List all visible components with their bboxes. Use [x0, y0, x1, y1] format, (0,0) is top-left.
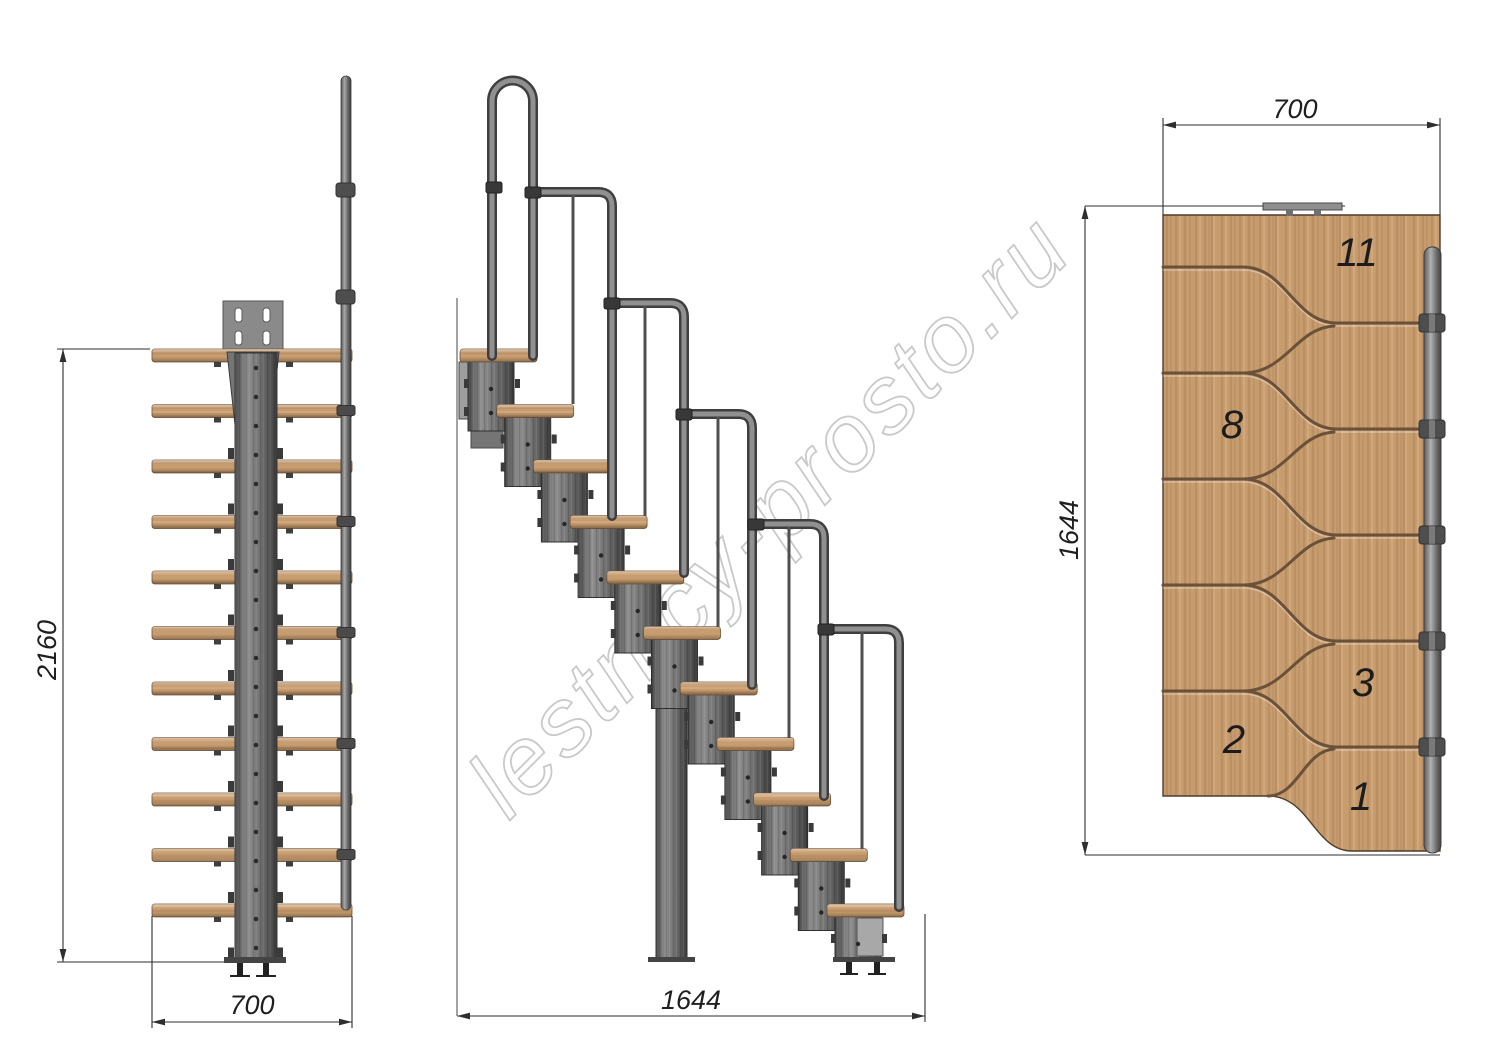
- tread-number-8: 8: [1221, 403, 1244, 447]
- support-base-plate: [648, 957, 695, 962]
- side-view: [457, 81, 904, 1016]
- top-mounting-plate: [1263, 203, 1342, 216]
- tread-number-11: 11: [1336, 231, 1378, 275]
- plan-width-dimension-lines: [1163, 118, 1440, 215]
- dimension-arrow: [1163, 122, 1176, 129]
- column-bolt-holes: [254, 366, 259, 951]
- front-view: [152, 76, 355, 976]
- dim-side-run: 1644: [661, 985, 721, 1015]
- rail-clamp: [748, 519, 764, 530]
- dim-plan-depth: 1644: [1054, 500, 1084, 560]
- dimension-arrow: [60, 349, 67, 362]
- side-base-plate: [833, 957, 895, 974]
- handrail-collar: [337, 850, 355, 860]
- handrail-joint: [336, 183, 355, 197]
- handrail-collar: [337, 628, 355, 638]
- rail-clamp: [486, 182, 502, 193]
- handrail-collar: [337, 517, 355, 527]
- dim-front-height: 2160: [32, 620, 62, 681]
- dimension-arrow: [152, 1019, 165, 1026]
- handrail-joint: [336, 290, 355, 304]
- staircase-technical-drawing: lestnicy-prosto.ru 2160 700 1644 700 164…: [0, 0, 1500, 1060]
- rail-clamp: [525, 187, 541, 198]
- dimension-arrow: [1082, 842, 1089, 855]
- dimension-arrow: [457, 1013, 470, 1020]
- wall-mounting-plate: [223, 301, 283, 352]
- center-column-ribs: [235, 353, 277, 958]
- handrail-collar: [337, 406, 355, 416]
- dimension-arrow: [339, 1019, 352, 1026]
- rail-clamp: [604, 298, 620, 309]
- dimension-arrow: [912, 1013, 925, 1020]
- tread-number-2: 2: [1222, 718, 1245, 762]
- dim-front-width: 700: [229, 990, 274, 1020]
- tread-number-3: 3: [1352, 661, 1374, 705]
- dim-plan-width: 700: [1272, 94, 1317, 124]
- dimension-arrow: [1082, 206, 1089, 219]
- dimension-arrow: [1427, 122, 1440, 129]
- rail-clamp: [818, 624, 834, 635]
- handrail-post: [341, 76, 351, 910]
- dimension-arrow: [60, 949, 67, 962]
- canvas: lestnicy-prosto.ru 2160 700 1644 700 164…: [0, 0, 1500, 1060]
- handrail-collar: [337, 739, 355, 749]
- tread-number-1: 1: [1350, 775, 1372, 819]
- rail-clamp: [676, 409, 692, 420]
- plan-handrail-tube: [1424, 247, 1441, 853]
- handrail-tube: [492, 81, 533, 356]
- plan-view: 11 8 3 2 1: [1163, 203, 1445, 853]
- front-base-plate: [224, 957, 286, 976]
